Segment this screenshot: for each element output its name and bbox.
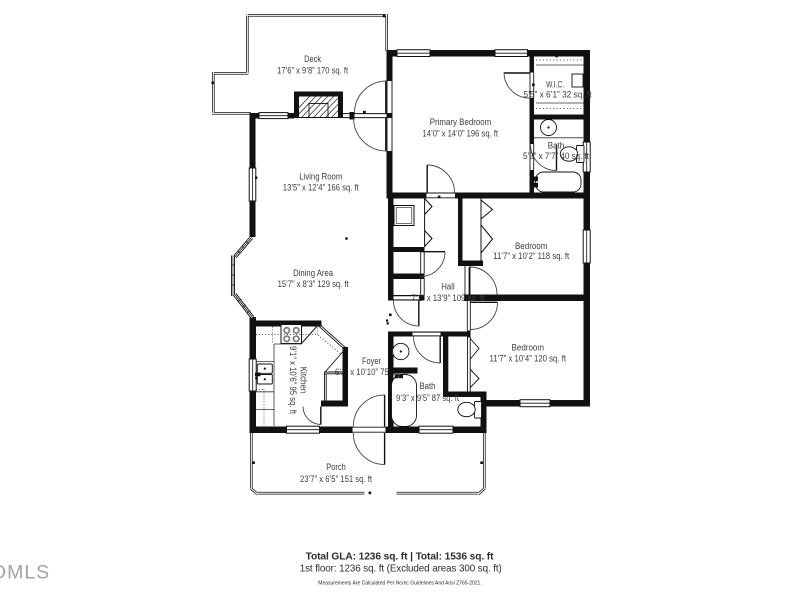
svg-text:Primary Bedroom: Primary Bedroom — [430, 117, 492, 128]
svg-text:11’7” x 10’4” 120 sq. ft: 11’7” x 10’4” 120 sq. ft — [490, 354, 567, 365]
svg-text:13’5” x 12’4” 166 sq. ft: 13’5” x 12’4” 166 sq. ft — [283, 183, 359, 194]
svg-text:5’3” x 7’7” 40 sq. ft: 5’3” x 7’7” 40 sq. ft — [523, 151, 589, 162]
svg-text:15’7” x 8’3” 129 sq. ft: 15’7” x 8’3” 129 sq. ft — [278, 279, 349, 290]
svg-text:Total GLA: 1236 sq. ft | Total: Total GLA: 1236 sq. ft | Total: 1536 sq.… — [306, 551, 495, 562]
svg-text:Hall: Hall — [441, 282, 455, 293]
svg-text:9’3” x 9’5” 87 sq. ft: 9’3” x 9’5” 87 sq. ft — [396, 393, 459, 404]
svg-text:DMLS: DMLS — [0, 562, 50, 584]
svg-text:Bath: Bath — [548, 140, 565, 151]
svg-text:Kitchen: Kitchen — [298, 367, 309, 394]
svg-text:Measurements Are Calculated Pe: Measurements Are Calculated Per Ncrec Gu… — [318, 580, 481, 586]
svg-text:9’1” x 10’6” 95 sq. ft: 9’1” x 10’6” 95 sq. ft — [287, 346, 298, 414]
svg-text:11’7” x 10’2” 118 sq. ft: 11’7” x 10’2” 118 sq. ft — [493, 251, 569, 262]
svg-text:14’0” x 14’0” 196 sq. ft: 14’0” x 14’0” 196 sq. ft — [423, 128, 499, 139]
svg-text:17’6” x 9’8” 170 sq. ft: 17’6” x 9’8” 170 sq. ft — [277, 66, 348, 77]
svg-text:Porch: Porch — [326, 462, 346, 473]
svg-text:Deck: Deck — [304, 54, 321, 65]
svg-text:Living Room: Living Room — [299, 172, 342, 183]
svg-text:23’7” x 6’5” 151 sq. ft: 23’7” x 6’5” 151 sq. ft — [300, 474, 372, 485]
svg-text:Bath: Bath — [420, 381, 436, 392]
svg-text:Foyer: Foyer — [362, 356, 382, 367]
svg-text:5’5” x 6’1” 32 sq. ft: 5’5” x 6’1” 32 sq. ft — [524, 90, 592, 101]
svg-text:Bedroom: Bedroom — [512, 343, 545, 354]
svg-text:Dining Area: Dining Area — [293, 268, 334, 279]
svg-text:1st floor: 1236 sq. ft (Exclud: 1st floor: 1236 sq. ft (Excluded areas 3… — [300, 564, 502, 575]
svg-text:7’1” x 13’9” 109 sq. ft: 7’1” x 13’9” 109 sq. ft — [412, 293, 485, 304]
